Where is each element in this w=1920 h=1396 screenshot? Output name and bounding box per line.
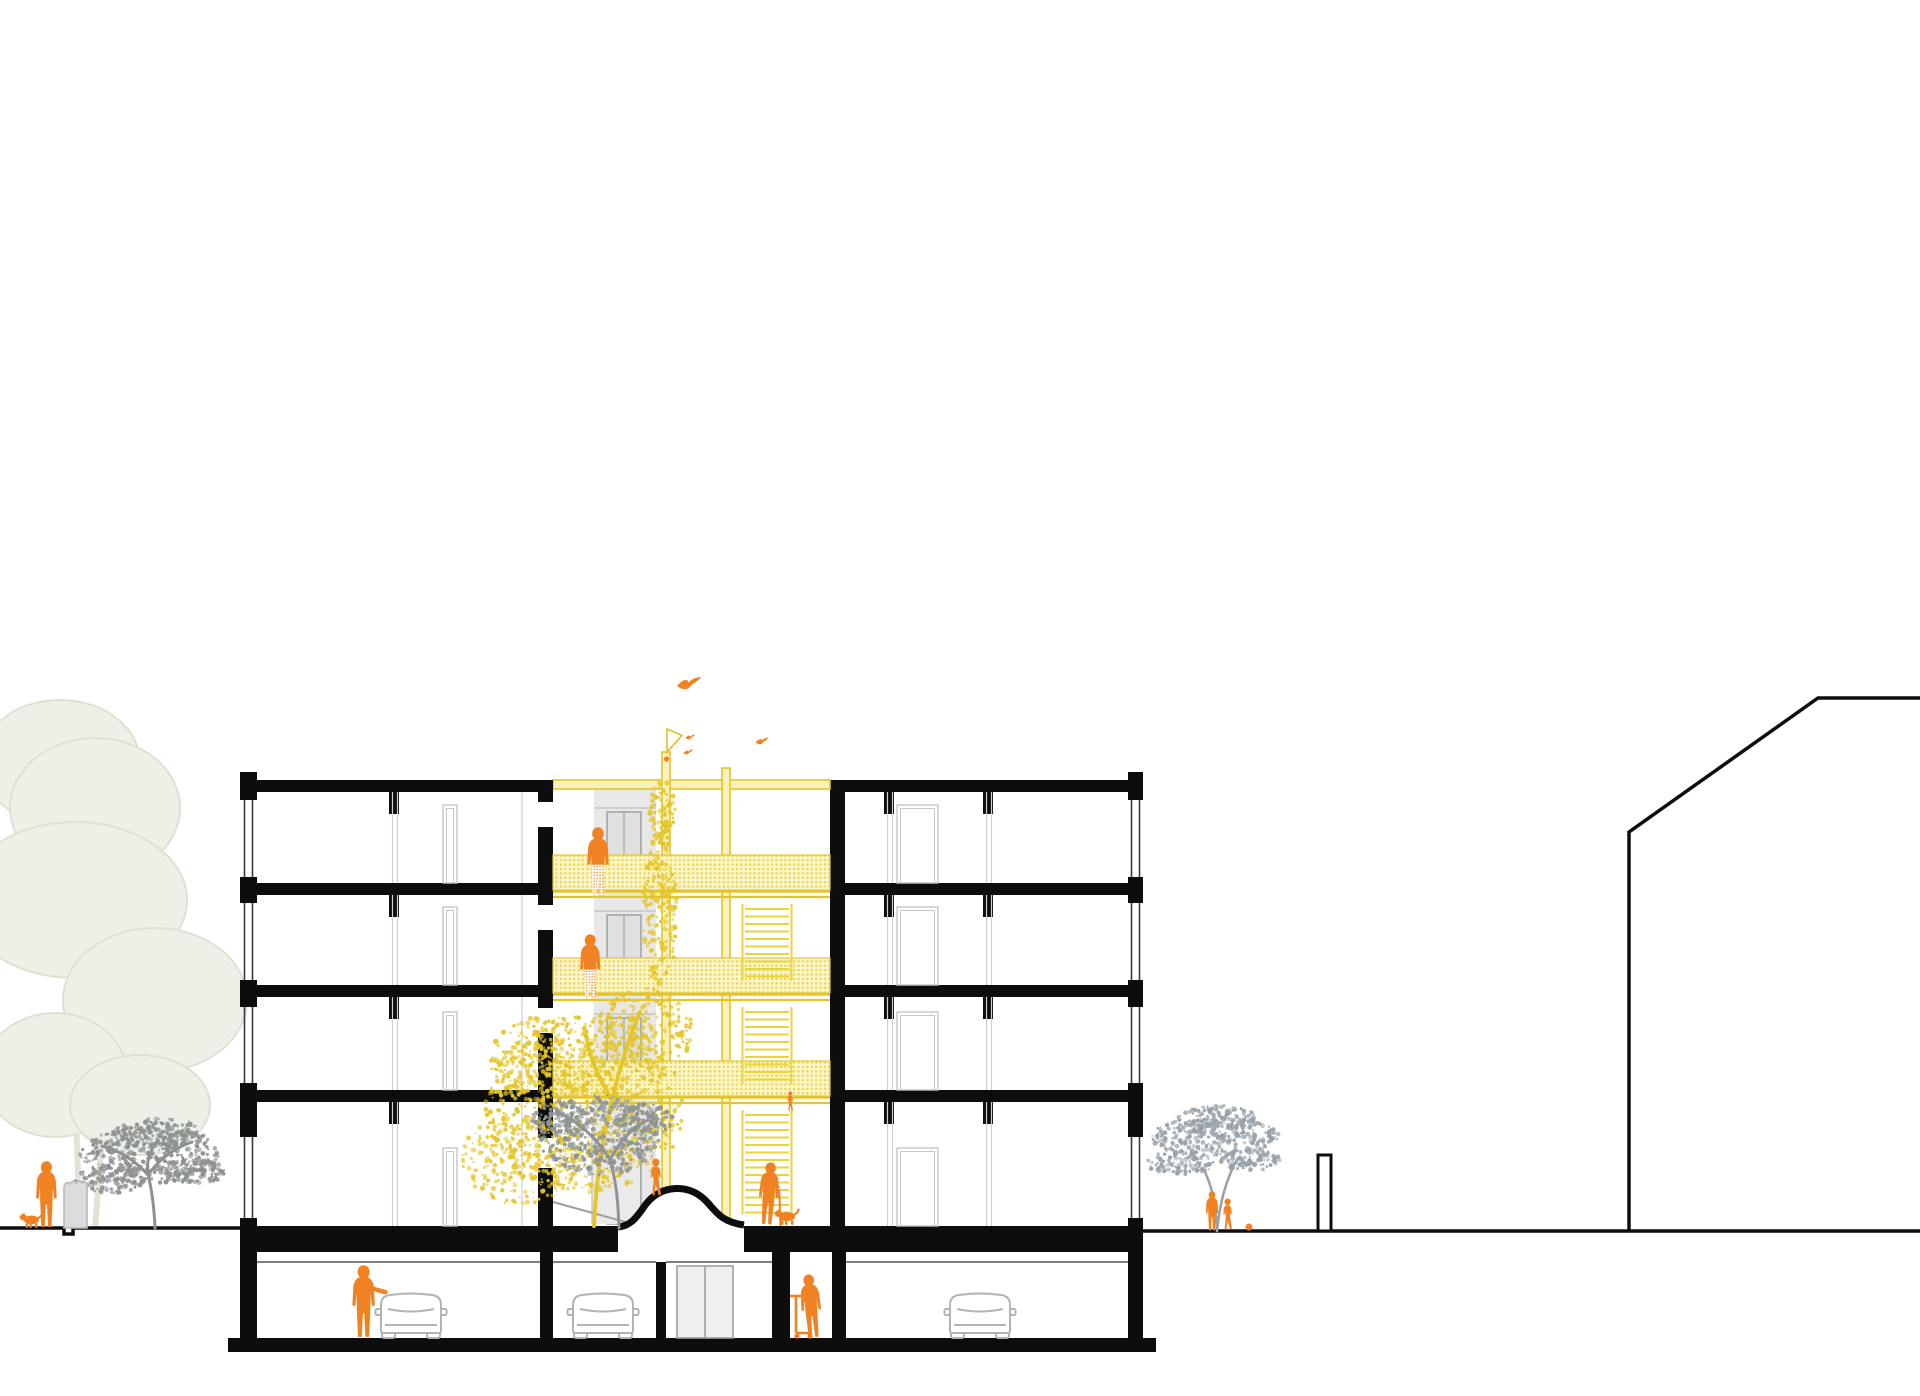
bird-small-1	[685, 734, 695, 739]
bird-small-2	[683, 749, 693, 754]
door-frame-inner	[447, 911, 454, 986]
neighbor-building-outline	[1629, 698, 1920, 1231]
yellow-courtyard-tree	[461, 780, 693, 1226]
car-basement-right	[945, 1294, 1016, 1339]
child-under-right-tree	[1223, 1198, 1232, 1229]
basement-wall-4	[832, 1252, 846, 1338]
facade-wall-block	[240, 1083, 257, 1137]
courtyard-wall-left-segment	[538, 780, 553, 802]
floor-slab-right-l1	[830, 1090, 1143, 1102]
facade-wall-block	[1128, 877, 1143, 903]
floor-slab-left-l2	[240, 985, 553, 997]
generated-structure	[240, 772, 1143, 1252]
facade-wall-block	[240, 980, 257, 1007]
door-frame	[443, 907, 457, 985]
facade-wall-block	[240, 877, 257, 903]
faded-background-tree	[0, 700, 247, 1228]
pennant-flag	[667, 729, 682, 752]
courtyard-wall-left-segment	[538, 827, 553, 905]
door-frame-inner	[901, 911, 935, 986]
dog-street-left	[19, 1213, 42, 1228]
facade-wall-block	[1128, 772, 1143, 800]
door-frame-inner	[447, 1016, 454, 1091]
basement-door	[677, 1266, 733, 1338]
basement-wall-exterior-right	[1128, 1252, 1143, 1338]
door-frame	[897, 805, 938, 883]
post-marker	[664, 756, 669, 761]
door-frame-inner	[447, 809, 454, 884]
car-basement-left	[376, 1294, 447, 1339]
courtyard-wall-right	[830, 780, 845, 1226]
facade-wall-block	[1128, 1218, 1143, 1252]
door-frame	[897, 907, 938, 985]
door-frame-inner	[447, 1152, 454, 1227]
door-frame	[897, 1012, 938, 1090]
door-frame	[443, 1012, 457, 1090]
facade-wall-block	[240, 772, 257, 800]
atrium-roof-beam	[553, 780, 830, 789]
floor-slab-right-l2	[830, 985, 1143, 997]
car-basement-center	[568, 1294, 639, 1339]
ball	[1246, 1224, 1253, 1231]
bird-large	[677, 677, 701, 690]
roof-slab-left-block	[240, 780, 553, 792]
bird-small-3	[756, 737, 769, 744]
courtyard-wall-left-segment	[538, 930, 553, 1008]
floor-slab-left-l3	[240, 883, 553, 895]
boundary-wall-pillar	[1318, 1155, 1331, 1231]
basement-wall-exterior-left	[240, 1252, 257, 1338]
basement-floor-slab	[228, 1338, 1156, 1352]
facade-wall-block	[1128, 1083, 1143, 1137]
roof-slab-right-block	[830, 780, 1143, 792]
facade-wall-block	[1128, 980, 1143, 1007]
waste-bin	[64, 1181, 87, 1228]
door-frame	[897, 1148, 938, 1226]
basement-wall-2	[656, 1262, 666, 1338]
atrium-post-2	[722, 768, 730, 1226]
birds-layer	[677, 677, 769, 755]
ground-line-left	[0, 1228, 240, 1234]
door-frame-inner	[901, 1016, 935, 1091]
child-with-scooter-basement	[798, 1274, 823, 1338]
architectural-section-canvas: Building cross-section drawing Sectional…	[0, 0, 1920, 1396]
door-frame	[443, 805, 457, 883]
courtyard-wall-left-segment	[538, 1168, 553, 1226]
door-frame	[443, 1148, 457, 1226]
floor-slab-right-l3	[830, 883, 1143, 895]
door-frame-inner	[901, 1152, 935, 1227]
door-frame-inner	[901, 809, 935, 884]
basement-wall-1	[540, 1252, 553, 1338]
facade-wall-block	[240, 1218, 257, 1252]
basement-wall-3	[772, 1252, 790, 1338]
